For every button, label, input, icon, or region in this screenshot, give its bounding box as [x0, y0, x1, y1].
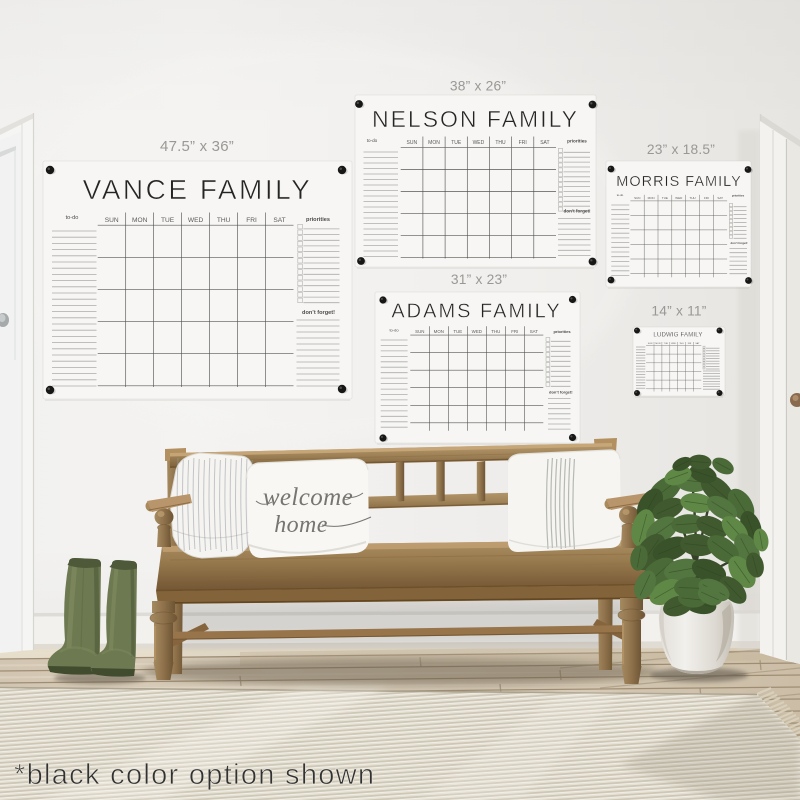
svg-text:31” x 23”: 31” x 23” — [451, 272, 507, 287]
svg-text:14” x 11”: 14” x 11” — [651, 304, 706, 319]
svg-text:MON: MON — [428, 140, 440, 146]
svg-text:priorities: priorities — [306, 217, 330, 223]
svg-text:FRI: FRI — [246, 217, 257, 224]
svg-text:priorities: priorities — [567, 139, 587, 144]
svg-text:TUE: TUE — [161, 217, 175, 224]
svg-text:TUE: TUE — [664, 343, 669, 345]
svg-text:WED: WED — [188, 217, 204, 224]
svg-text:THU: THU — [495, 140, 506, 146]
svg-text:ADAMS FAMILY: ADAMS FAMILY — [391, 301, 561, 323]
svg-text:NELSON FAMILY: NELSON FAMILY — [372, 106, 579, 132]
svg-text:FRI: FRI — [511, 329, 518, 334]
svg-text:THU: THU — [679, 343, 684, 345]
svg-text:THU: THU — [491, 329, 500, 334]
svg-text:47.5” x 36”: 47.5” x 36” — [160, 138, 234, 155]
svg-text:MON: MON — [132, 217, 148, 224]
svg-text:WED: WED — [473, 140, 485, 146]
svg-text:welcome: welcome — [263, 484, 353, 511]
svg-text:don’t forget!: don’t forget! — [563, 209, 591, 214]
svg-text:don’t forget!: don’t forget! — [302, 310, 335, 316]
svg-text:SUN: SUN — [634, 196, 640, 200]
svg-text:WED: WED — [675, 196, 683, 200]
svg-text:38” x 26”: 38” x 26” — [450, 79, 506, 94]
svg-text:priorities: priorities — [553, 329, 571, 334]
svg-text:SAT: SAT — [695, 342, 700, 345]
svg-text:home: home — [274, 512, 328, 538]
svg-text:SAT: SAT — [530, 329, 539, 334]
svg-text:SUN: SUN — [648, 343, 653, 345]
svg-text:FRI: FRI — [688, 343, 692, 345]
svg-text:TUE: TUE — [662, 196, 668, 200]
svg-text:SUN: SUN — [105, 217, 119, 224]
svg-text:SUN: SUN — [407, 140, 418, 146]
svg-text:don’t forget!: don’t forget! — [730, 241, 747, 245]
svg-text:to-do: to-do — [389, 328, 399, 333]
svg-text:MON: MON — [655, 343, 661, 345]
svg-text:THU: THU — [690, 196, 696, 200]
svg-text:MON: MON — [434, 329, 444, 334]
svg-text:TUE: TUE — [453, 329, 462, 334]
svg-text:SUN: SUN — [415, 329, 424, 334]
svg-text:WED: WED — [671, 343, 677, 345]
svg-text:VANCE FAMILY: VANCE FAMILY — [83, 174, 313, 205]
svg-text:priorities: priorities — [732, 194, 745, 198]
svg-text:MON: MON — [648, 196, 655, 200]
svg-text:SAT: SAT — [717, 196, 723, 200]
svg-text:don’t forget!: don’t forget! — [549, 390, 573, 395]
svg-text:FRI: FRI — [519, 140, 527, 146]
svg-text:LUDWIG FAMILY: LUDWIG FAMILY — [653, 333, 702, 339]
svg-text:FRI: FRI — [704, 196, 709, 200]
svg-text:to-do: to-do — [66, 215, 79, 221]
svg-text:WED: WED — [472, 329, 482, 334]
svg-text:23” x 18.5”: 23” x 18.5” — [647, 142, 715, 157]
svg-text:*black color option shown: *black color option shown — [14, 759, 375, 791]
svg-text:TUE: TUE — [451, 140, 462, 146]
svg-text:SAT: SAT — [540, 140, 549, 146]
svg-text:MORRIS FAMILY: MORRIS FAMILY — [616, 174, 742, 190]
svg-text:THU: THU — [217, 217, 231, 224]
svg-text:to-do: to-do — [367, 138, 378, 143]
svg-text:to-do: to-do — [617, 193, 624, 197]
svg-text:SAT: SAT — [273, 217, 285, 224]
